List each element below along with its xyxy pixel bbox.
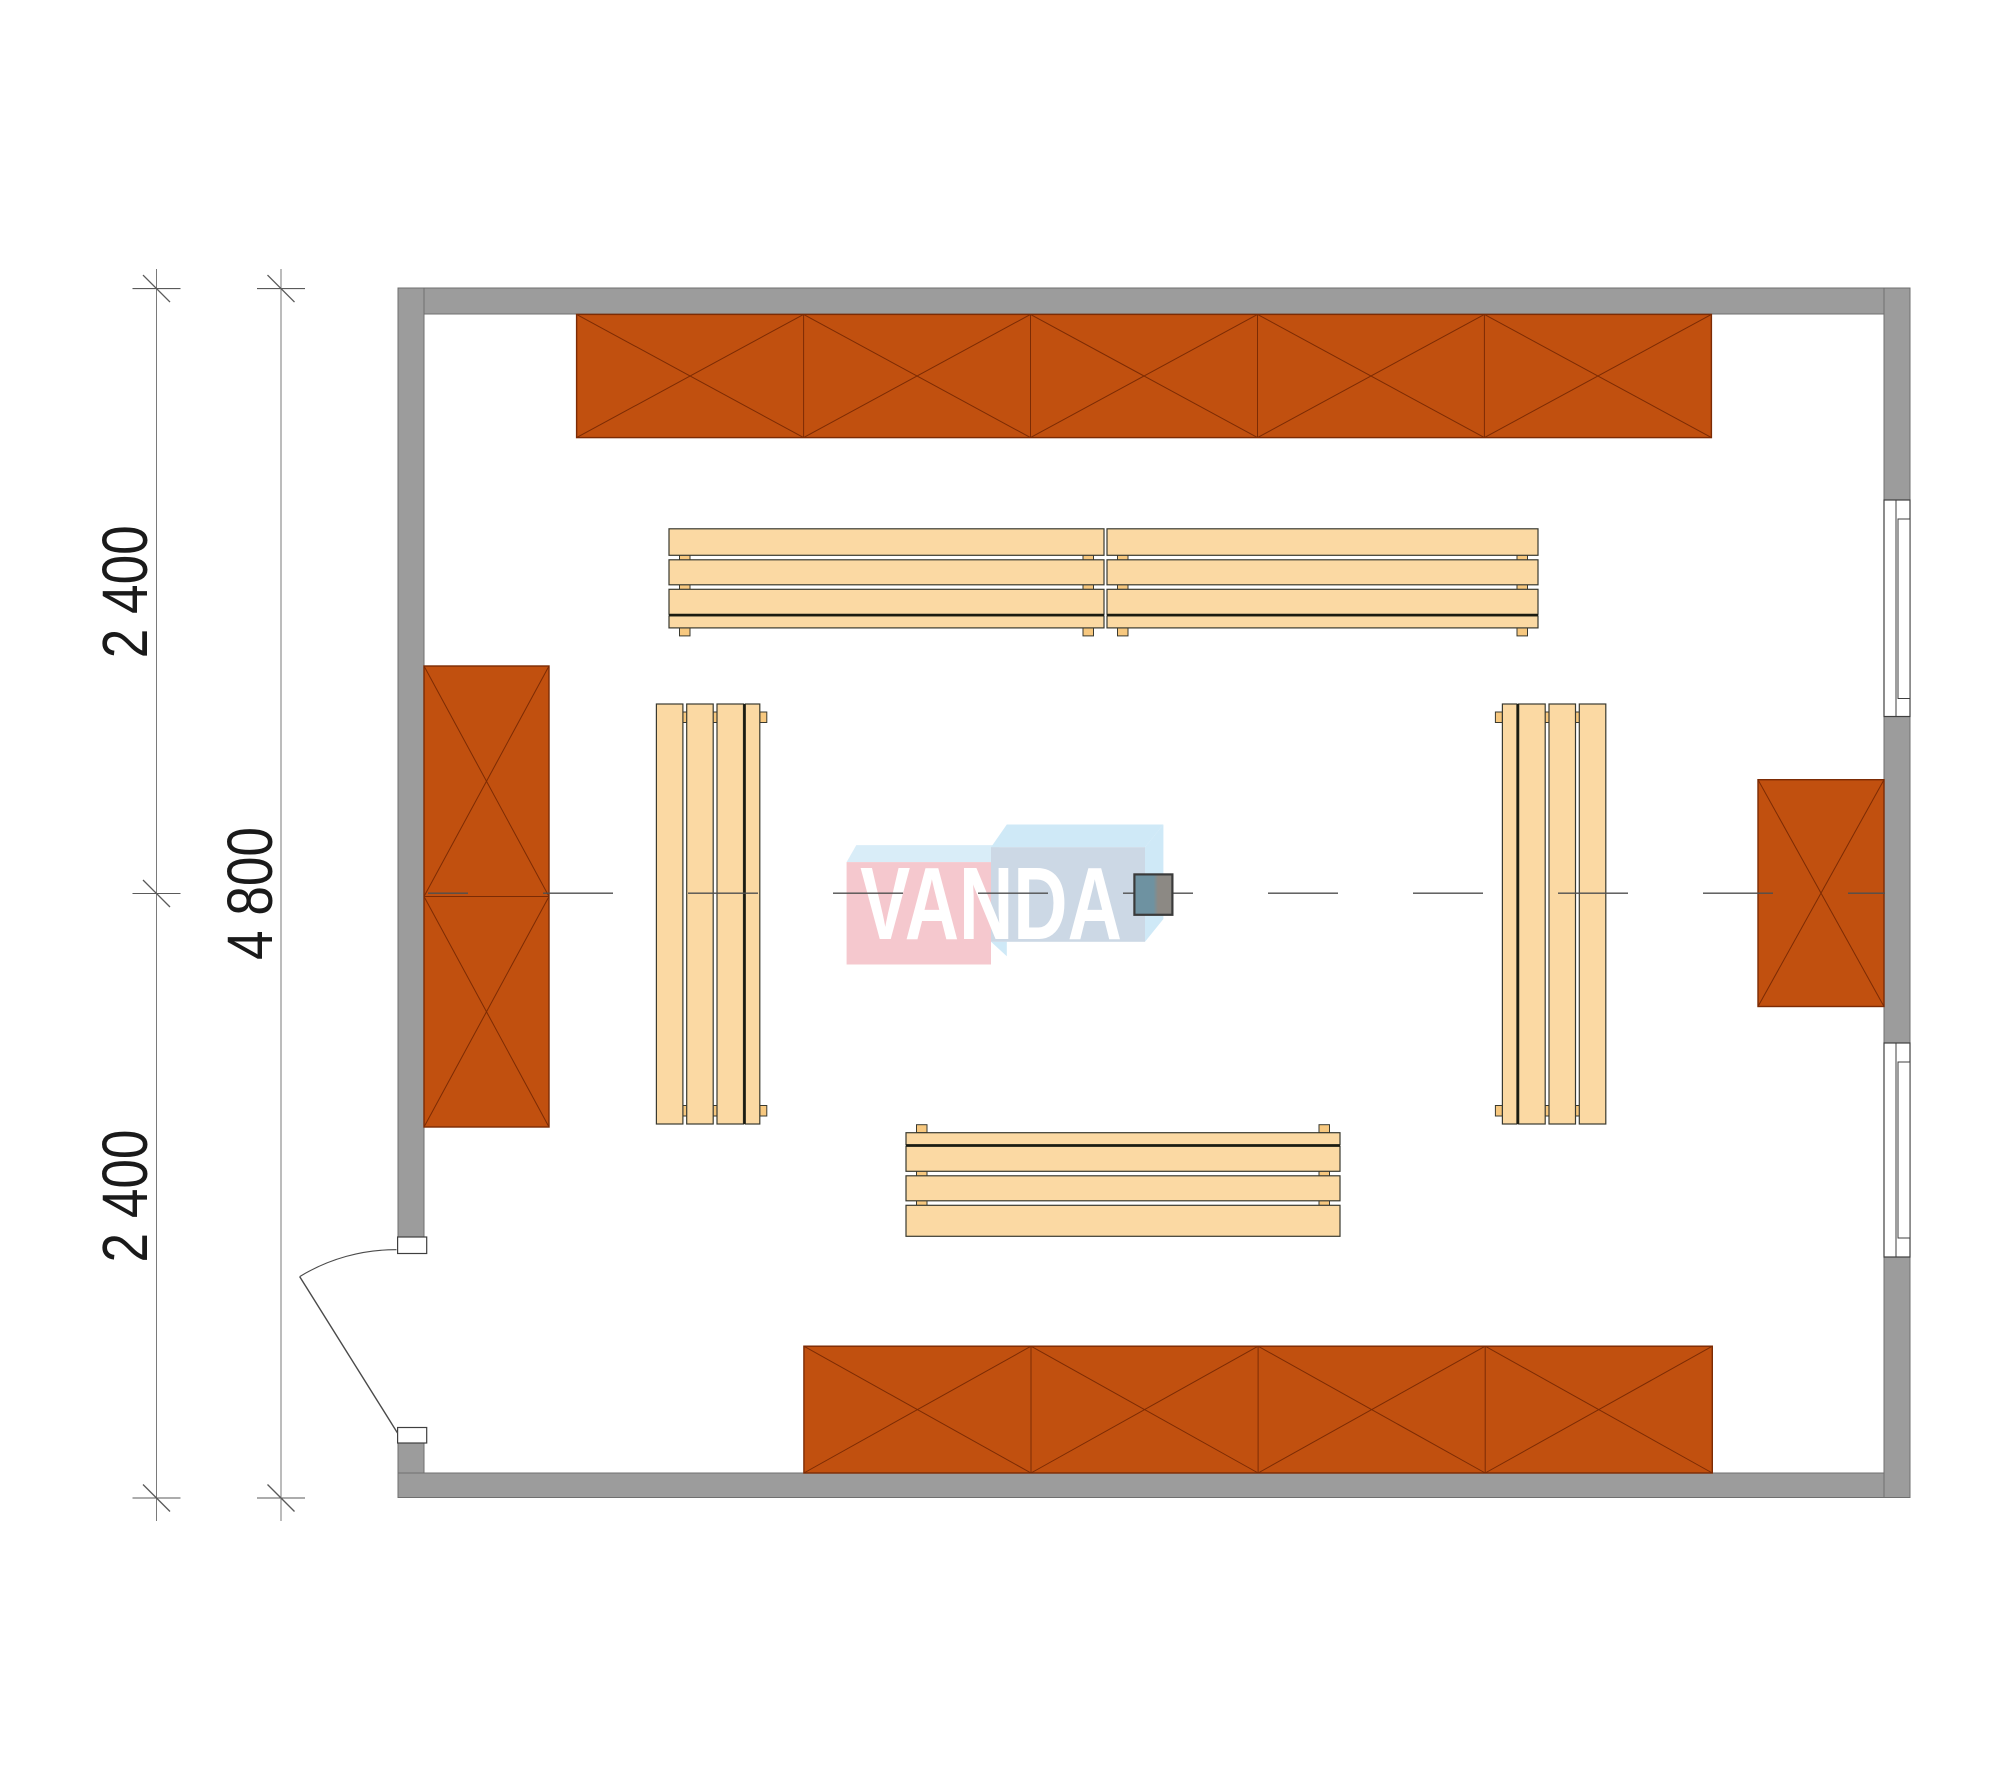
svg-text:2 400: 2 400 [90, 1130, 161, 1263]
svg-text:2 400: 2 400 [90, 525, 161, 658]
svg-text:VANDA: VANDA [860, 846, 1122, 961]
svg-text:4 800: 4 800 [215, 827, 286, 960]
